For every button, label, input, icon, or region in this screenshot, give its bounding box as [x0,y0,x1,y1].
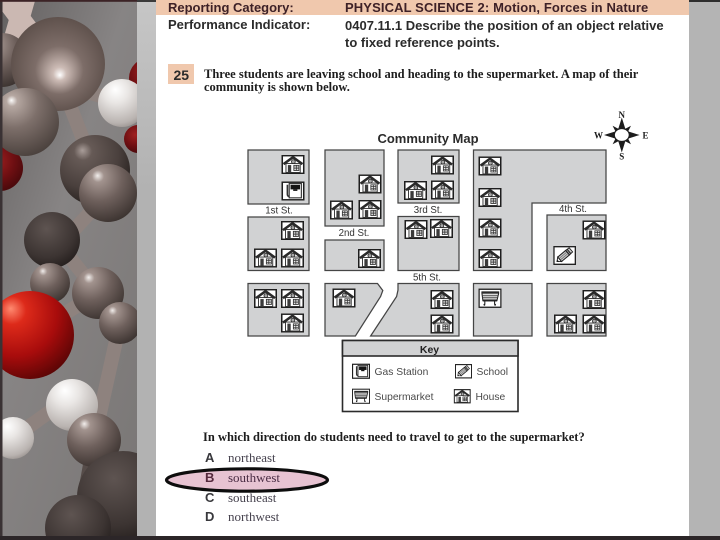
svg-text:W: W [594,131,603,141]
svg-text:4th St.: 4th St. [559,204,587,215]
svg-text:S: S [619,152,624,162]
svg-text:1st St.: 1st St. [265,206,292,217]
svg-text:E: E [642,131,648,141]
svg-text:Supermarket: Supermarket [375,392,434,403]
svg-text:Gas Station: Gas Station [375,367,429,378]
svg-text:House: House [476,392,506,403]
svg-text:School: School [477,367,508,378]
svg-text:Key: Key [420,344,439,356]
svg-text:3rd St.: 3rd St. [414,205,443,216]
svg-text:2nd St.: 2nd St. [339,228,370,239]
svg-text:N: N [619,110,626,120]
svg-text:5th St.: 5th St. [413,273,441,284]
